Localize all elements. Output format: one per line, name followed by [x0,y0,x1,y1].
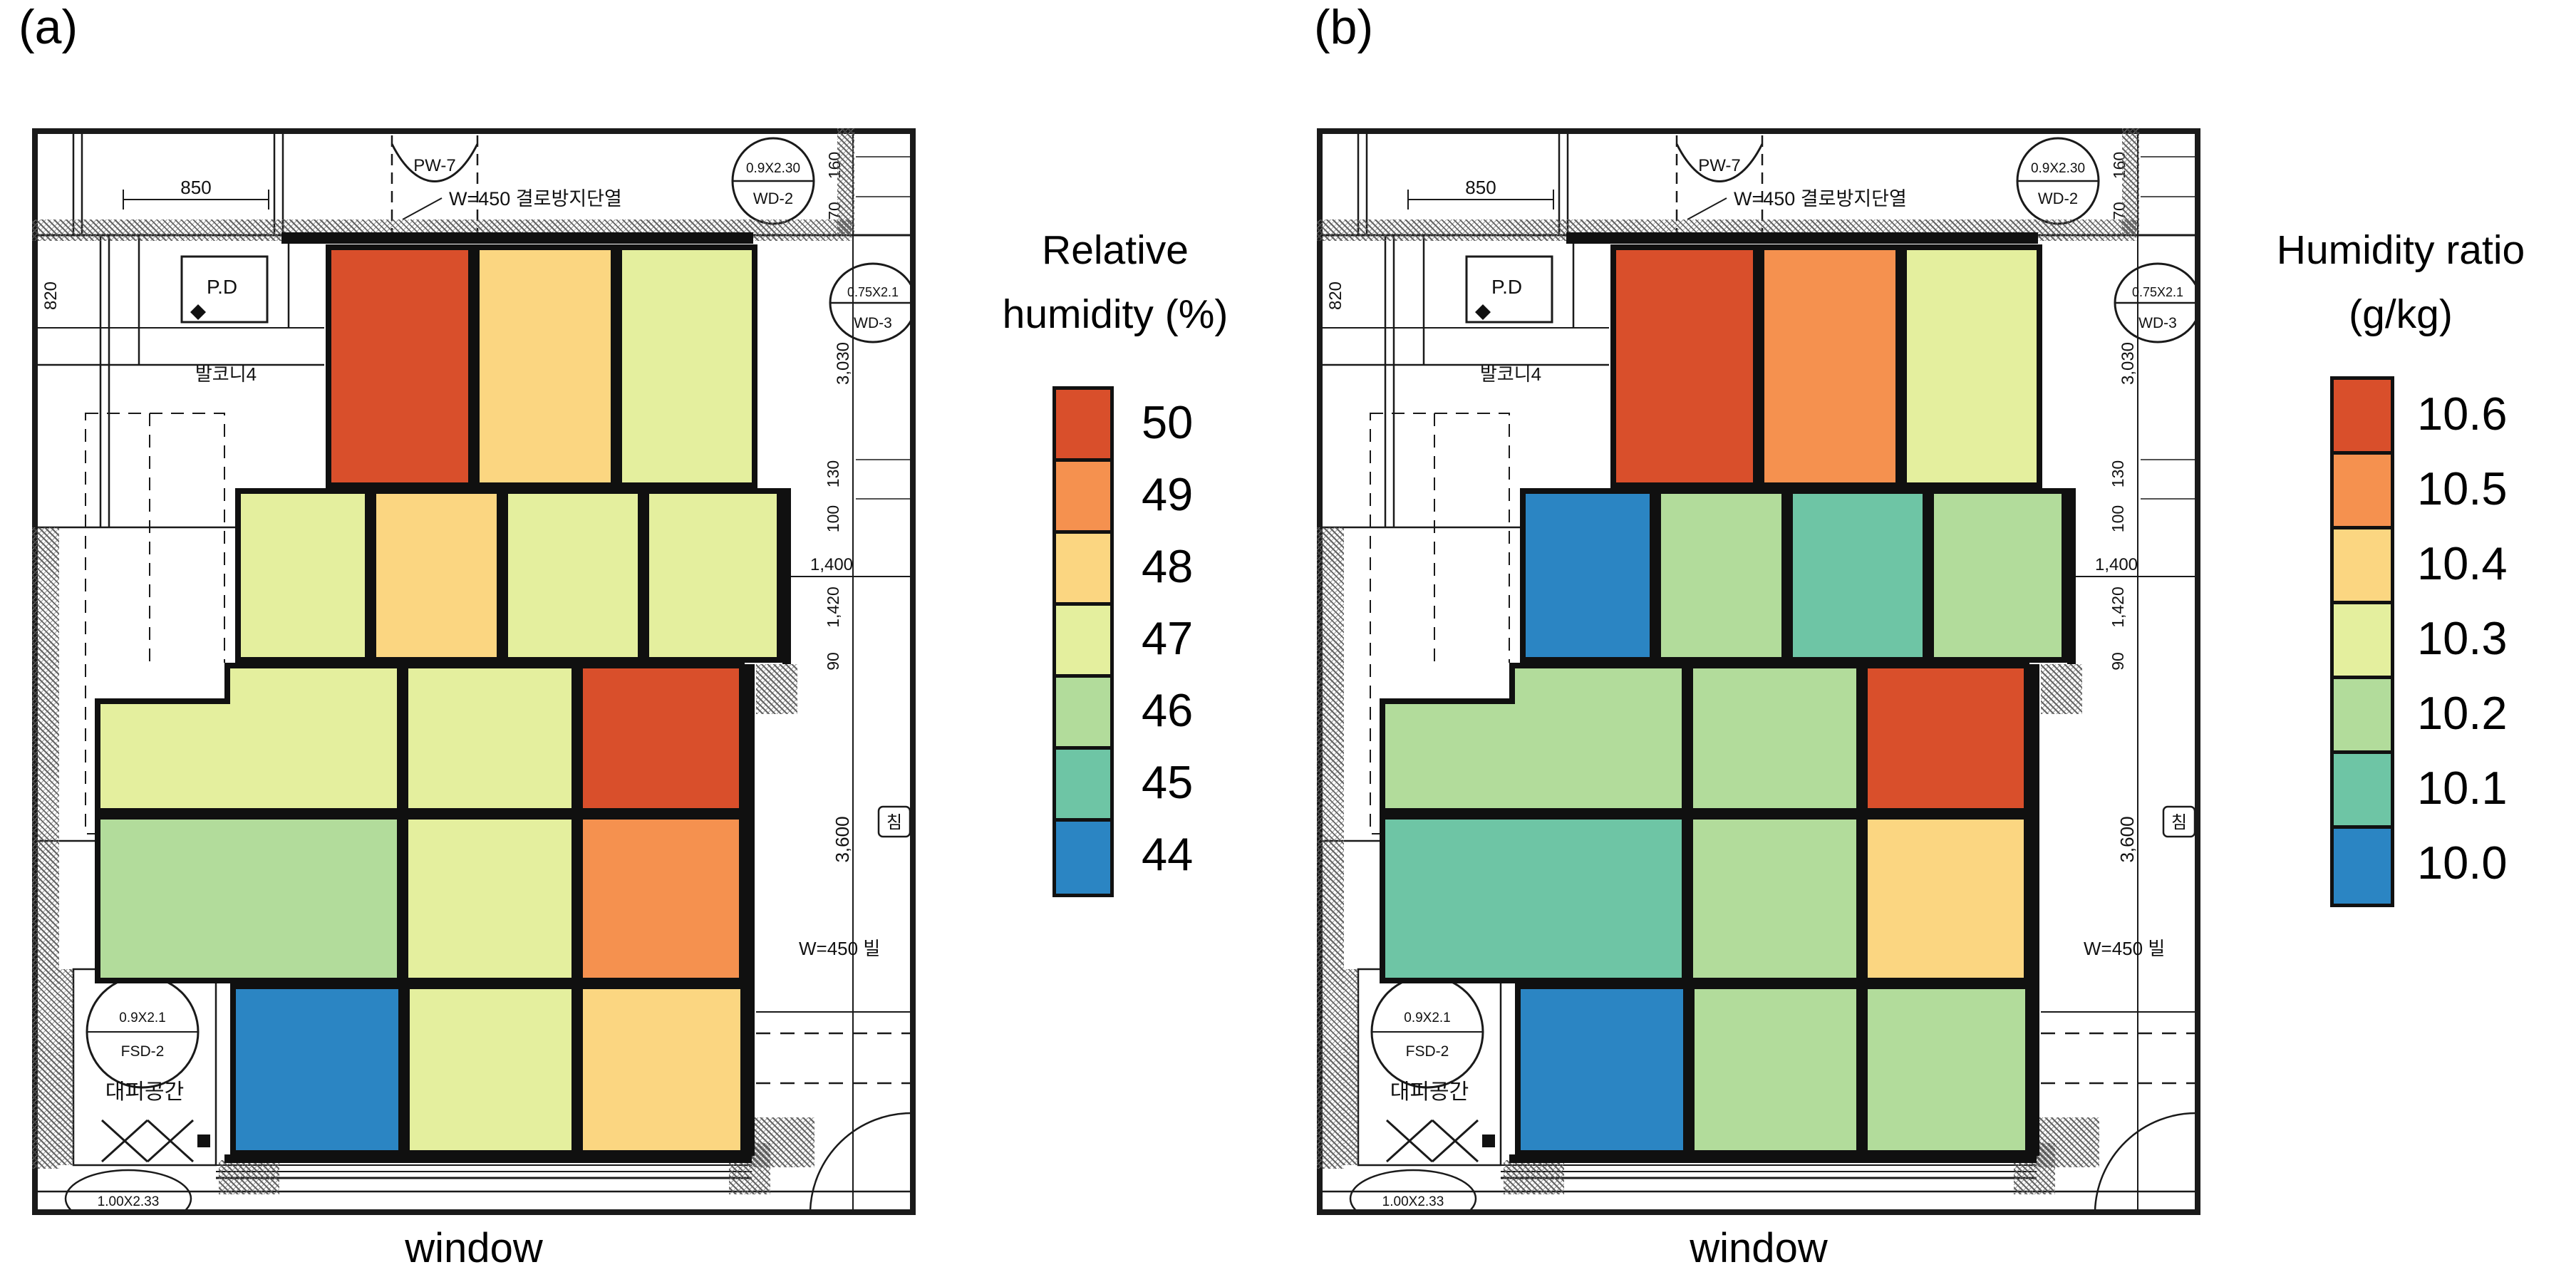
colorbar-tick-label: 48 [1142,530,1193,602]
heatmap-cell [1901,244,2042,488]
heatmap-cell [1862,814,2029,983]
colorbar-cell [2334,380,2391,455]
heatmap-cell [235,488,371,663]
colorbar-b [2330,376,2394,907]
colorbar-tick-label: 10.2 [2417,676,2508,750]
colorbar-cell [1056,606,1110,678]
heatmap-cell [1687,814,1862,983]
colorbar-tick-label: 46 [1142,674,1193,746]
heatmap-cell [474,244,616,488]
heatmap-b [1317,128,2200,1215]
colorbar-a [1052,386,1114,897]
heatmap-a [32,128,916,1215]
colorbar-b-labels: 10.610.510.410.310.210.110.0 [2417,376,2508,900]
heatmap-cell [577,983,746,1156]
heatmap-cell [1928,488,2067,663]
legend-b-title-line1: Humidity ratio [2225,218,2576,282]
heatmap-cell [326,244,474,488]
heatmap-cell [1610,244,1759,488]
heatmap-cell [1862,663,2029,814]
heatmap-cell [577,814,745,983]
heatmap-cell [371,488,502,663]
colorbar-cell [1056,390,1110,462]
heatmap-cell [403,814,577,983]
colorbar-cell [2334,529,2391,604]
heatmap-cell [502,488,643,663]
colorbar-cell [2334,455,2391,529]
heatmap-cell [95,814,403,983]
heatmap-cell [1655,488,1787,663]
heatmap-cell [1862,983,2031,1156]
colorbar-cell [2334,754,2391,829]
heatmap-cell [577,663,745,814]
panel-b-label: (b) [1314,3,1373,51]
colorbar-cell [1056,678,1110,750]
heatmap-cell [1520,488,1655,663]
plan-notch [1380,663,1515,704]
heatmap-cell [1787,488,1928,663]
colorbar-cell [2334,679,2391,754]
colorbar-tick-label: 10.3 [2417,601,2508,676]
heatmap-cell [616,244,757,488]
window-label-a: window [32,1224,916,1272]
window-label-b: window [1317,1224,2200,1272]
heatmap-cell [643,488,782,663]
panel-a-label: (a) [19,3,78,51]
colorbar-cell [1056,462,1110,534]
colorbar-tick-label: 50 [1142,386,1193,458]
legend-a-title-line1: Relative [955,218,1276,282]
colorbar-tick-label: 10.0 [2417,825,2508,900]
legend-a-title-line2: humidity (%) [955,282,1276,346]
colorbar-tick-label: 10.1 [2417,750,2508,825]
heatmap-cell [1380,814,1687,983]
floor-plan-b: 850 PW-7 W=450 결로방지단열 0.9X2.30 WD-2 820 … [1317,128,2200,1215]
heatmap-cell [1687,663,1862,814]
plan-notch [95,663,230,704]
colorbar-tick-label: 47 [1142,602,1193,674]
heatmap-cell [403,663,577,814]
legend-b-title-line2: (g/kg) [2225,282,2576,346]
colorbar-cell [1056,750,1110,822]
colorbar-cell [1056,822,1110,894]
heatmap-cell [1515,983,1689,1156]
heatmap-cell [404,983,577,1156]
heatmap-cell [1759,244,1901,488]
colorbar-cell [1056,534,1110,606]
heatmap-cell [1689,983,1862,1156]
floor-plan-a: 850 PW-7 W=450 결로방지단열 0.9X2.30 WD-2 820 … [32,128,916,1215]
colorbar-cell [2334,604,2391,679]
heatmap-cell [230,983,404,1156]
colorbar-tick-label: 44 [1142,818,1193,890]
colorbar-tick-label: 10.5 [2417,451,2508,526]
colorbar-cell [2334,829,2391,904]
legend-a-title: Relative humidity (%) [955,218,1276,346]
legend-b-title: Humidity ratio (g/kg) [2225,218,2576,346]
colorbar-a-labels: 50494847464544 [1142,386,1193,890]
colorbar-tick-label: 10.4 [2417,526,2508,601]
colorbar-tick-label: 49 [1142,458,1193,530]
figure: (a) (b) [0,0,2576,1287]
colorbar-tick-label: 45 [1142,746,1193,818]
colorbar-tick-label: 10.6 [2417,376,2508,451]
